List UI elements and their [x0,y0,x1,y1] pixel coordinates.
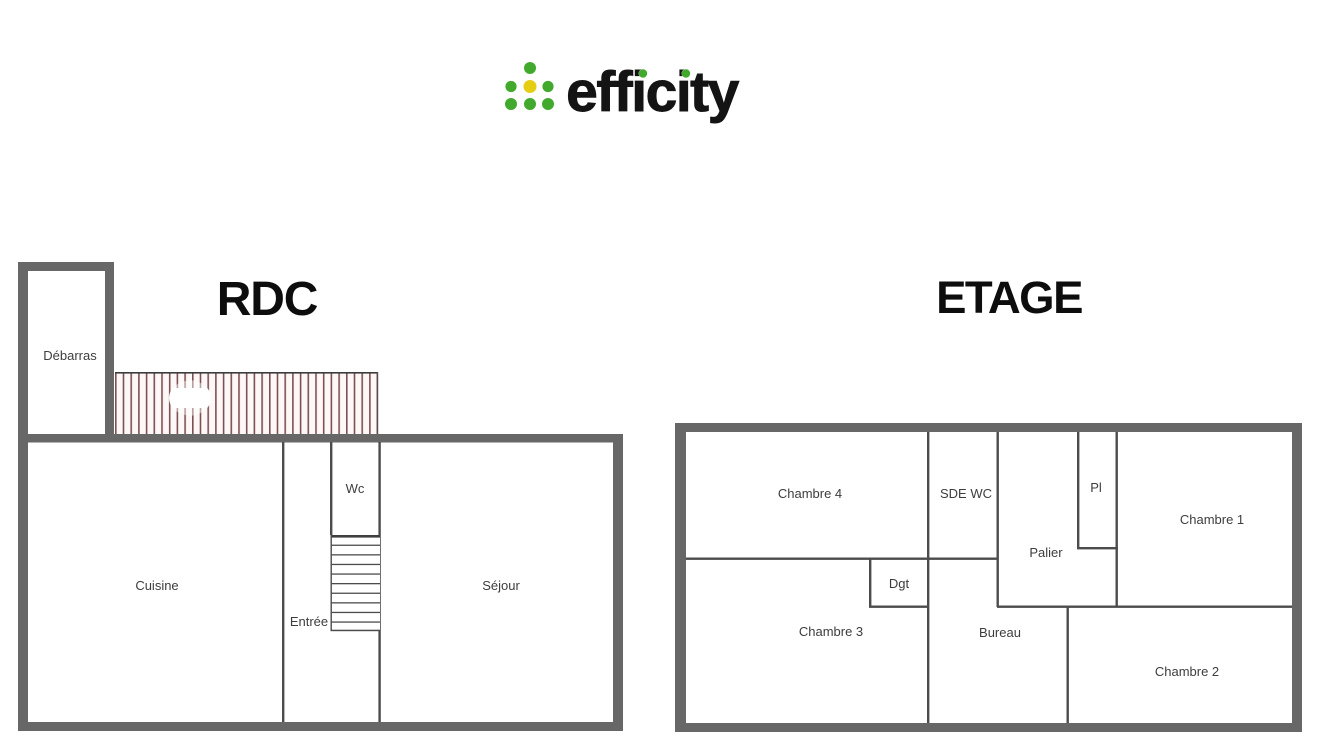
svg-text:Chambre 4: Chambre 4 [778,486,842,501]
svg-text:Palier: Palier [1029,545,1063,560]
svg-text:Cuisine: Cuisine [135,578,178,593]
svg-text:Dgt: Dgt [889,576,910,591]
svg-text:efficity: efficity [566,60,740,124]
svg-text:RDC: RDC [217,273,318,326]
svg-text:Séjour: Séjour [482,578,520,593]
svg-text:Débarras: Débarras [43,348,97,363]
svg-text:SDE WC: SDE WC [940,486,992,501]
svg-text:ETAGE: ETAGE [936,272,1082,323]
svg-text:Chambre 2: Chambre 2 [1155,664,1219,679]
svg-text:Wc: Wc [346,481,365,496]
svg-text:Entrée: Entrée [290,614,328,629]
svg-text:Chambre 3: Chambre 3 [799,624,863,639]
svg-text:Chambre 1: Chambre 1 [1180,512,1244,527]
svg-text:Pl: Pl [1090,480,1102,495]
svg-text:Bureau: Bureau [979,625,1021,640]
